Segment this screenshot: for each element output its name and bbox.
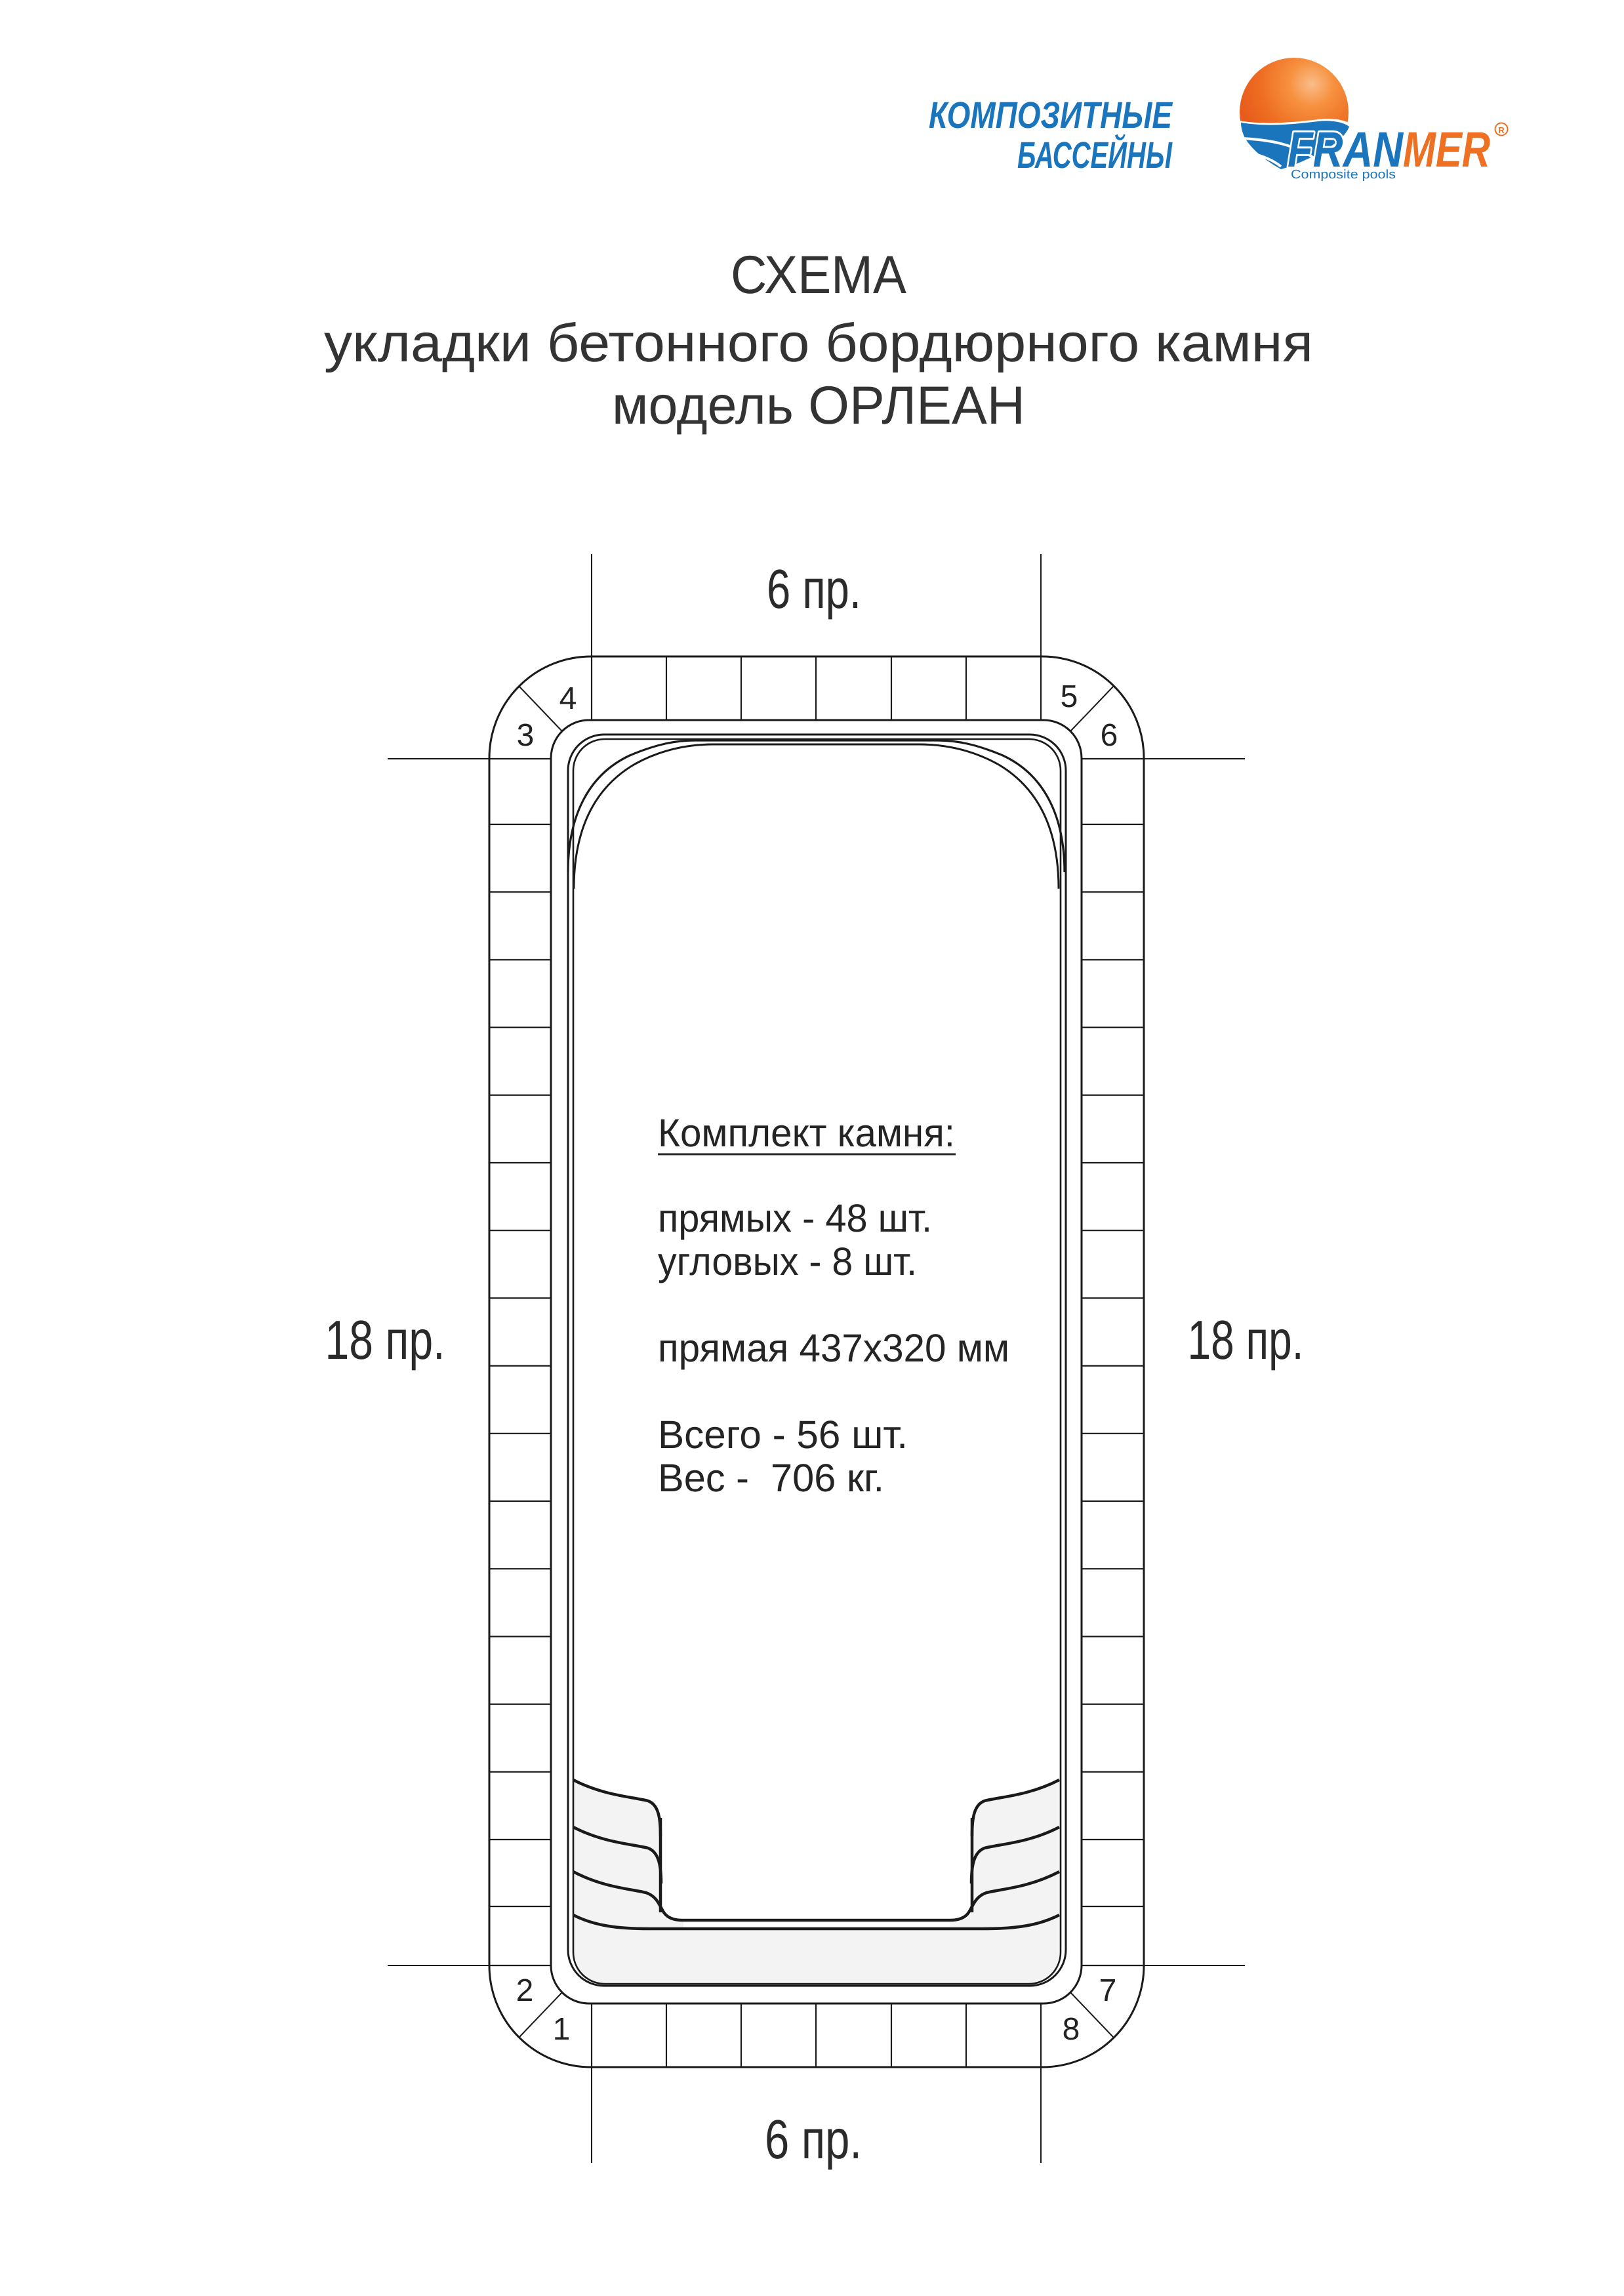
svg-text:6 пр.: 6 пр. bbox=[765, 2108, 862, 2170]
svg-text:4: 4 bbox=[559, 681, 577, 716]
svg-text:MER: MER bbox=[1403, 122, 1490, 178]
svg-text:5: 5 bbox=[1061, 679, 1078, 714]
svg-text:прямых - 48 шт.: прямых - 48 шт. bbox=[658, 1196, 932, 1240]
svg-text:1: 1 bbox=[553, 2012, 571, 2047]
svg-text:угловых - 8 шт.: угловых - 8 шт. bbox=[658, 1239, 917, 1283]
svg-text:Composite pools: Composite pools bbox=[1291, 168, 1396, 182]
svg-text:БАССЕЙНЫ: БАССЕЙНЫ bbox=[1017, 134, 1173, 176]
svg-text:18 пр.: 18 пр. bbox=[1188, 1309, 1304, 1371]
svg-text:прямая 437х320 мм: прямая 437х320 мм bbox=[658, 1326, 1009, 1370]
svg-text:Всего - 56 шт.: Всего - 56 шт. bbox=[658, 1413, 908, 1457]
svg-text:укладки бетонного бордюрного к: укладки бетонного бордюрного камня bbox=[324, 313, 1313, 373]
svg-text:R: R bbox=[1498, 125, 1505, 135]
svg-text:2: 2 bbox=[516, 1973, 534, 2008]
svg-text:модель ОРЛЕАН: модель ОРЛЕАН bbox=[612, 376, 1025, 435]
svg-text:Вес - 706 кг.: Вес - 706 кг. bbox=[658, 1456, 884, 1500]
svg-text:СХЕМА: СХЕМА bbox=[731, 245, 906, 305]
svg-text:6 пр.: 6 пр. bbox=[767, 558, 861, 620]
svg-text:18 пр.: 18 пр. bbox=[325, 1309, 445, 1371]
svg-text:КОМПОЗИТНЫЕ: КОМПОЗИТНЫЕ bbox=[929, 94, 1173, 136]
svg-text:Комплект камня:: Комплект камня: bbox=[658, 1111, 955, 1155]
svg-text:7: 7 bbox=[1099, 1973, 1117, 2008]
svg-text:8: 8 bbox=[1063, 2012, 1080, 2047]
svg-text:3: 3 bbox=[517, 718, 535, 753]
svg-text:6: 6 bbox=[1101, 718, 1118, 753]
